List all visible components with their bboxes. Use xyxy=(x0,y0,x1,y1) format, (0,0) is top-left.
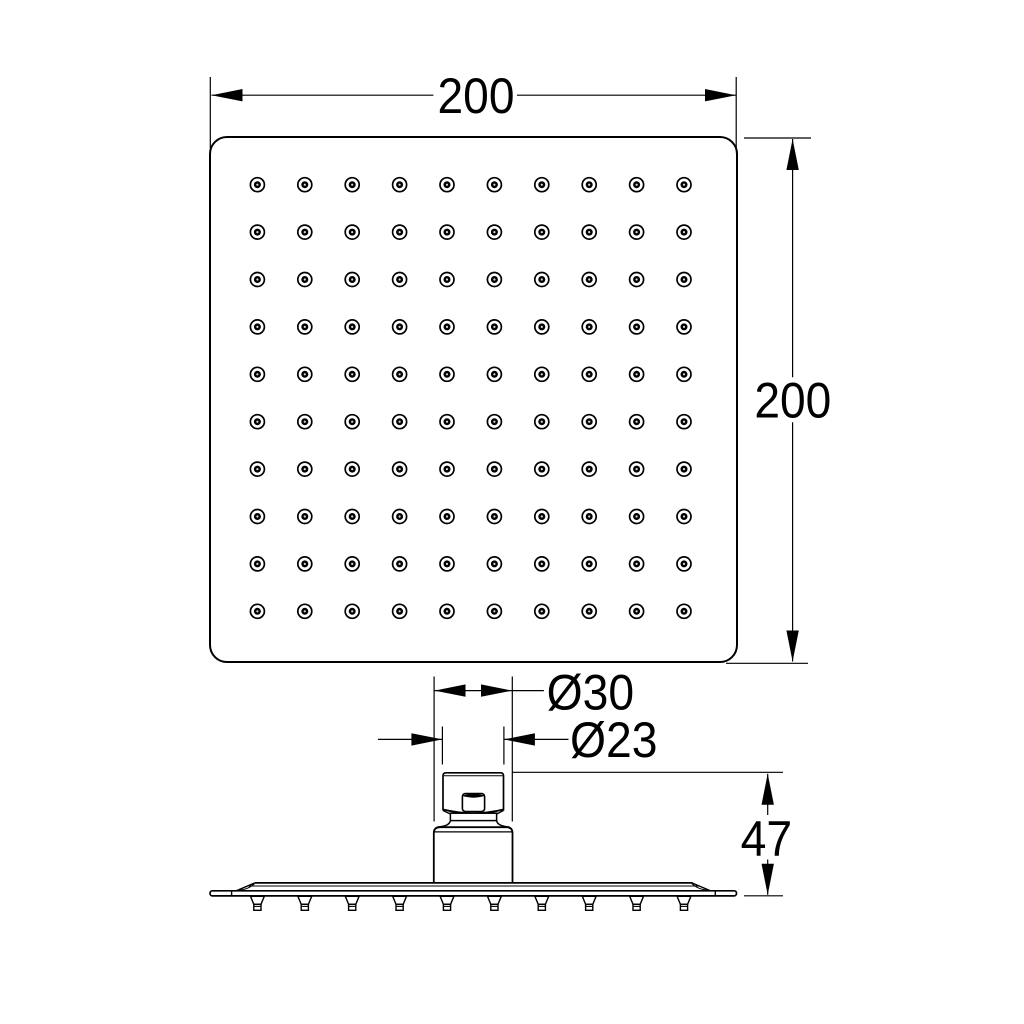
svg-text:Ø23: Ø23 xyxy=(570,711,658,768)
svg-text:200: 200 xyxy=(438,67,515,124)
svg-text:200: 200 xyxy=(754,371,831,428)
svg-text:47: 47 xyxy=(741,810,793,867)
